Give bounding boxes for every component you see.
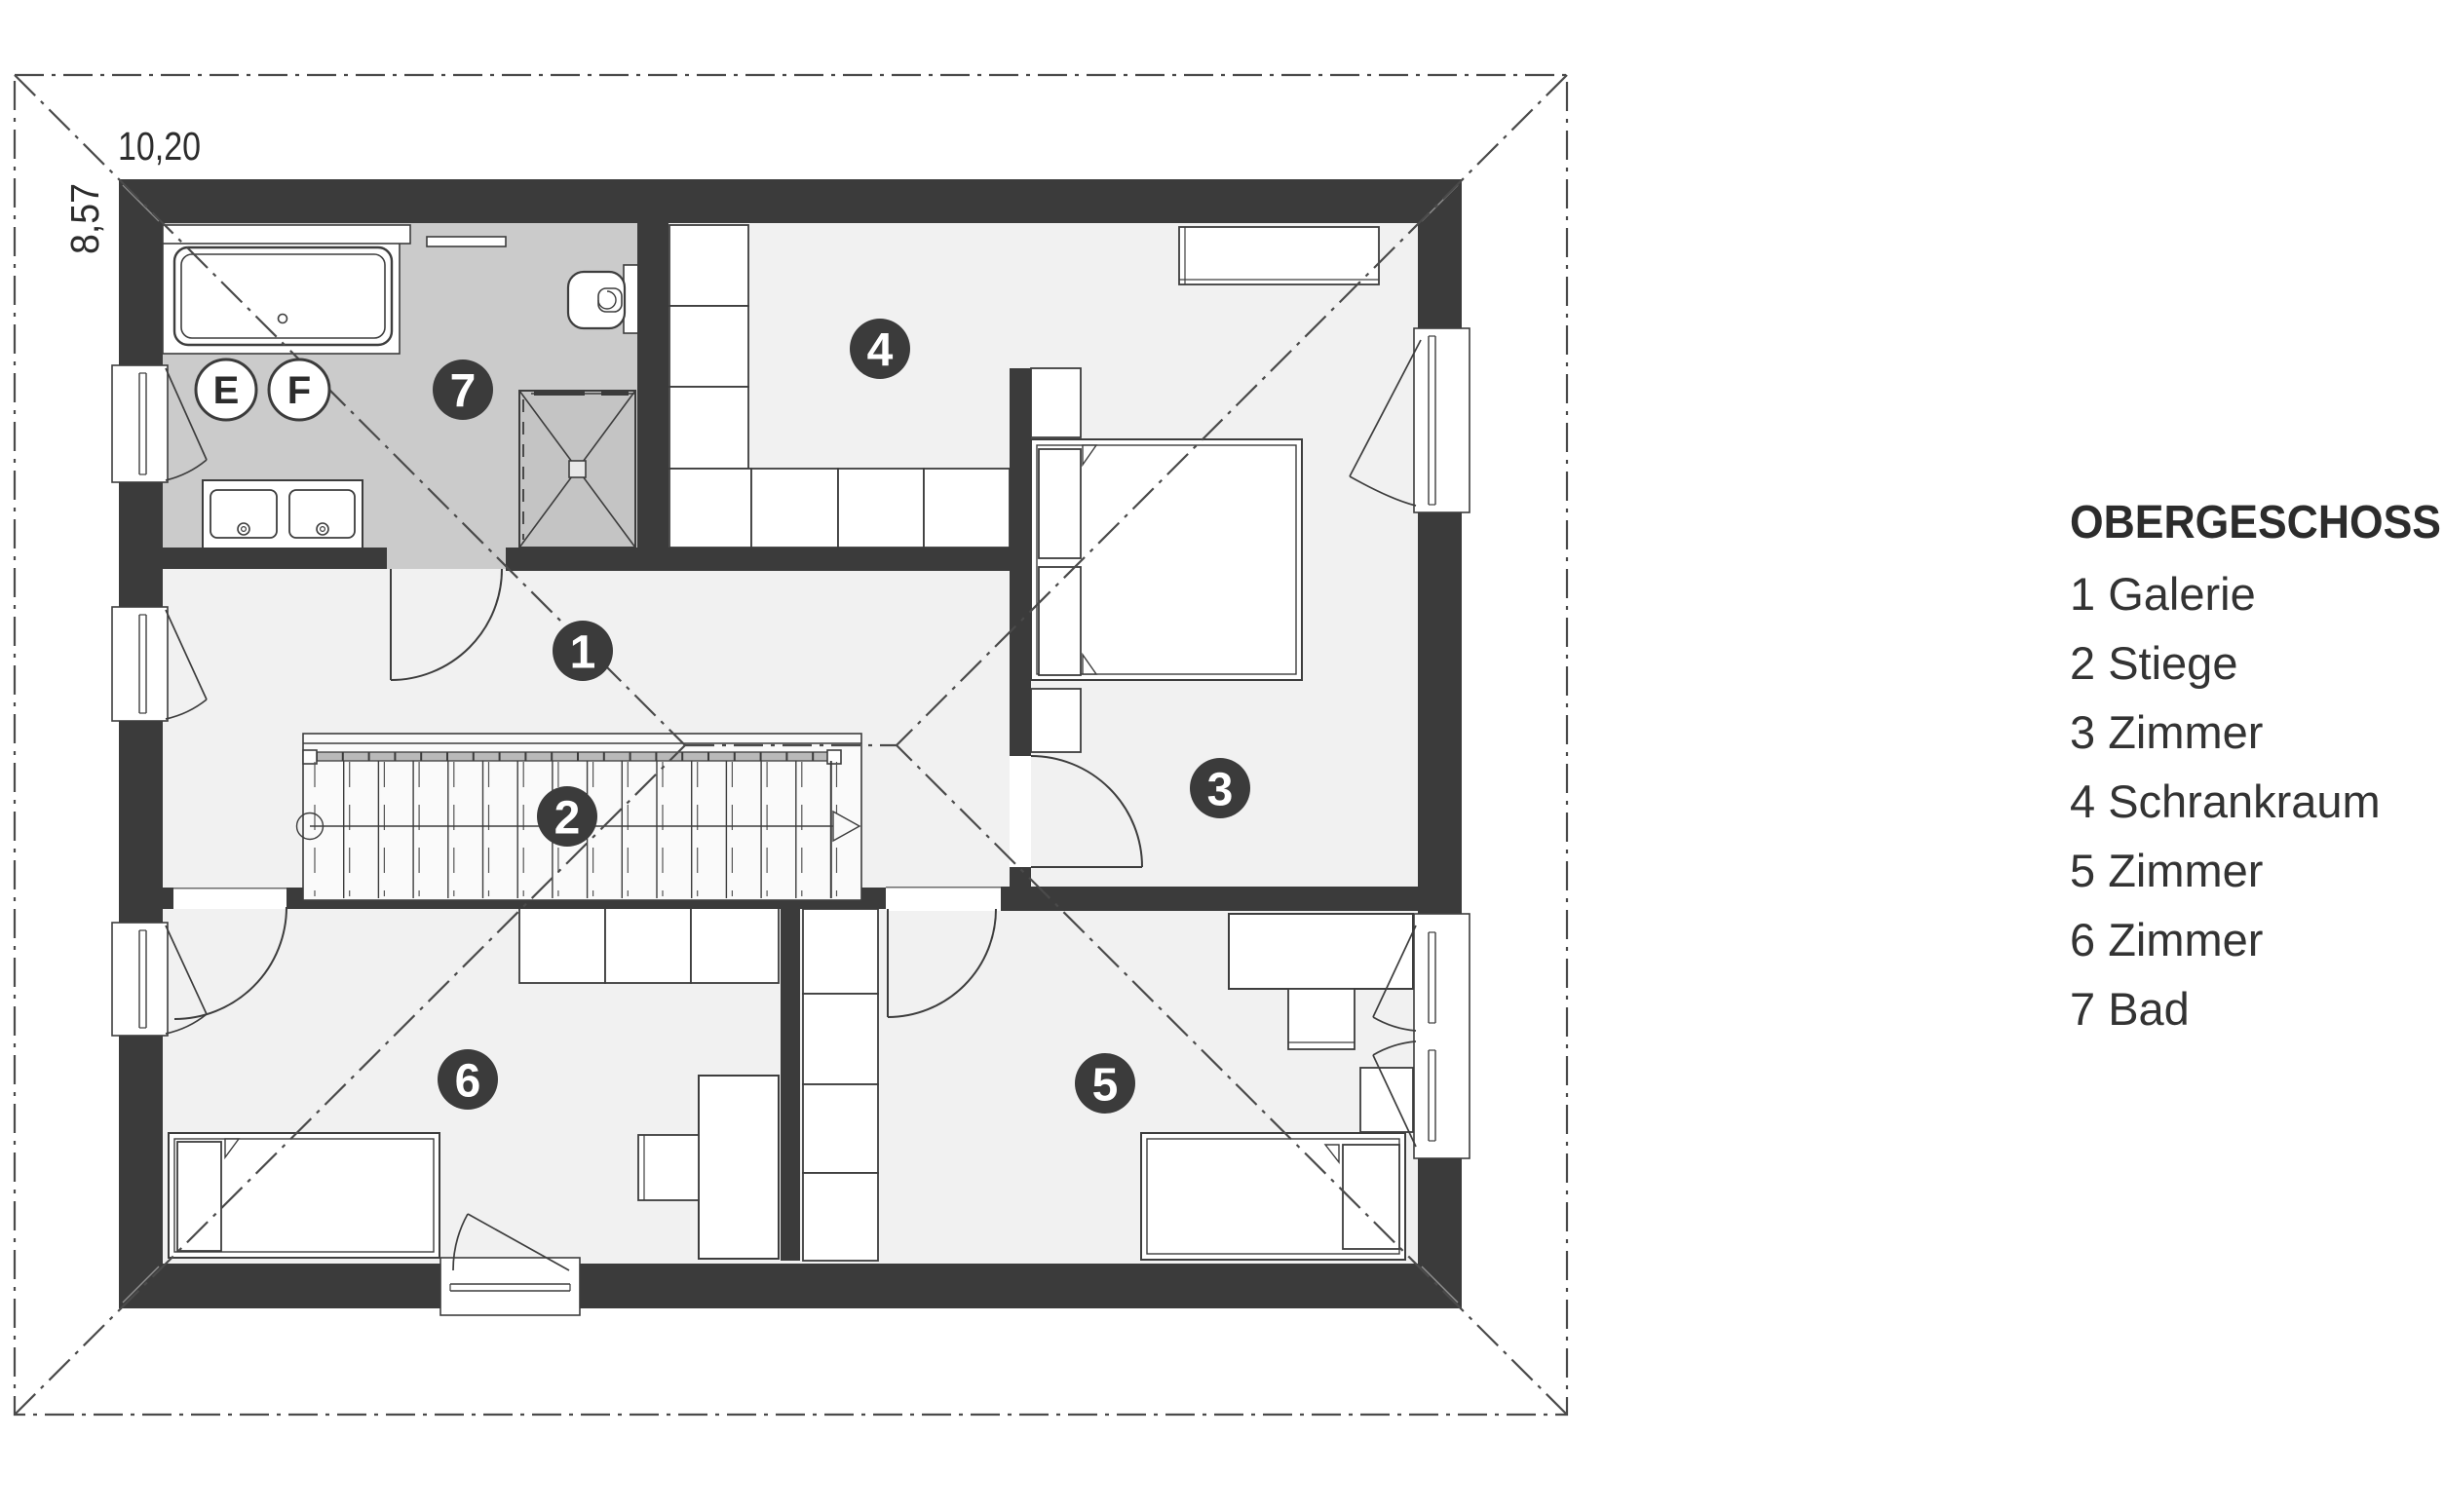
svg-text:5: 5 — [1092, 1060, 1119, 1112]
svg-text:2: 2 — [554, 793, 581, 845]
svg-text:10,20: 10,20 — [118, 124, 201, 169]
svg-text:OBERGESCHOSS: OBERGESCHOSS — [2070, 497, 2441, 548]
svg-text:3 Zimmer: 3 Zimmer — [2070, 706, 2263, 758]
svg-text:8,57: 8,57 — [62, 183, 107, 254]
svg-text:6: 6 — [455, 1056, 481, 1108]
svg-text:7: 7 — [450, 366, 477, 418]
svg-text:7 Bad: 7 Bad — [2070, 983, 2190, 1035]
svg-text:2 Stiege: 2 Stiege — [2070, 637, 2237, 689]
svg-text:6 Zimmer: 6 Zimmer — [2070, 914, 2263, 965]
svg-text:E: E — [213, 369, 240, 412]
svg-text:1 Galerie: 1 Galerie — [2070, 568, 2256, 620]
svg-text:4: 4 — [867, 325, 894, 377]
svg-text:3: 3 — [1207, 765, 1234, 816]
svg-text:5 Zimmer: 5 Zimmer — [2070, 845, 2263, 896]
svg-text:1: 1 — [570, 627, 596, 679]
svg-text:F: F — [287, 369, 311, 412]
svg-text:4 Schrankraum: 4 Schrankraum — [2070, 775, 2381, 827]
